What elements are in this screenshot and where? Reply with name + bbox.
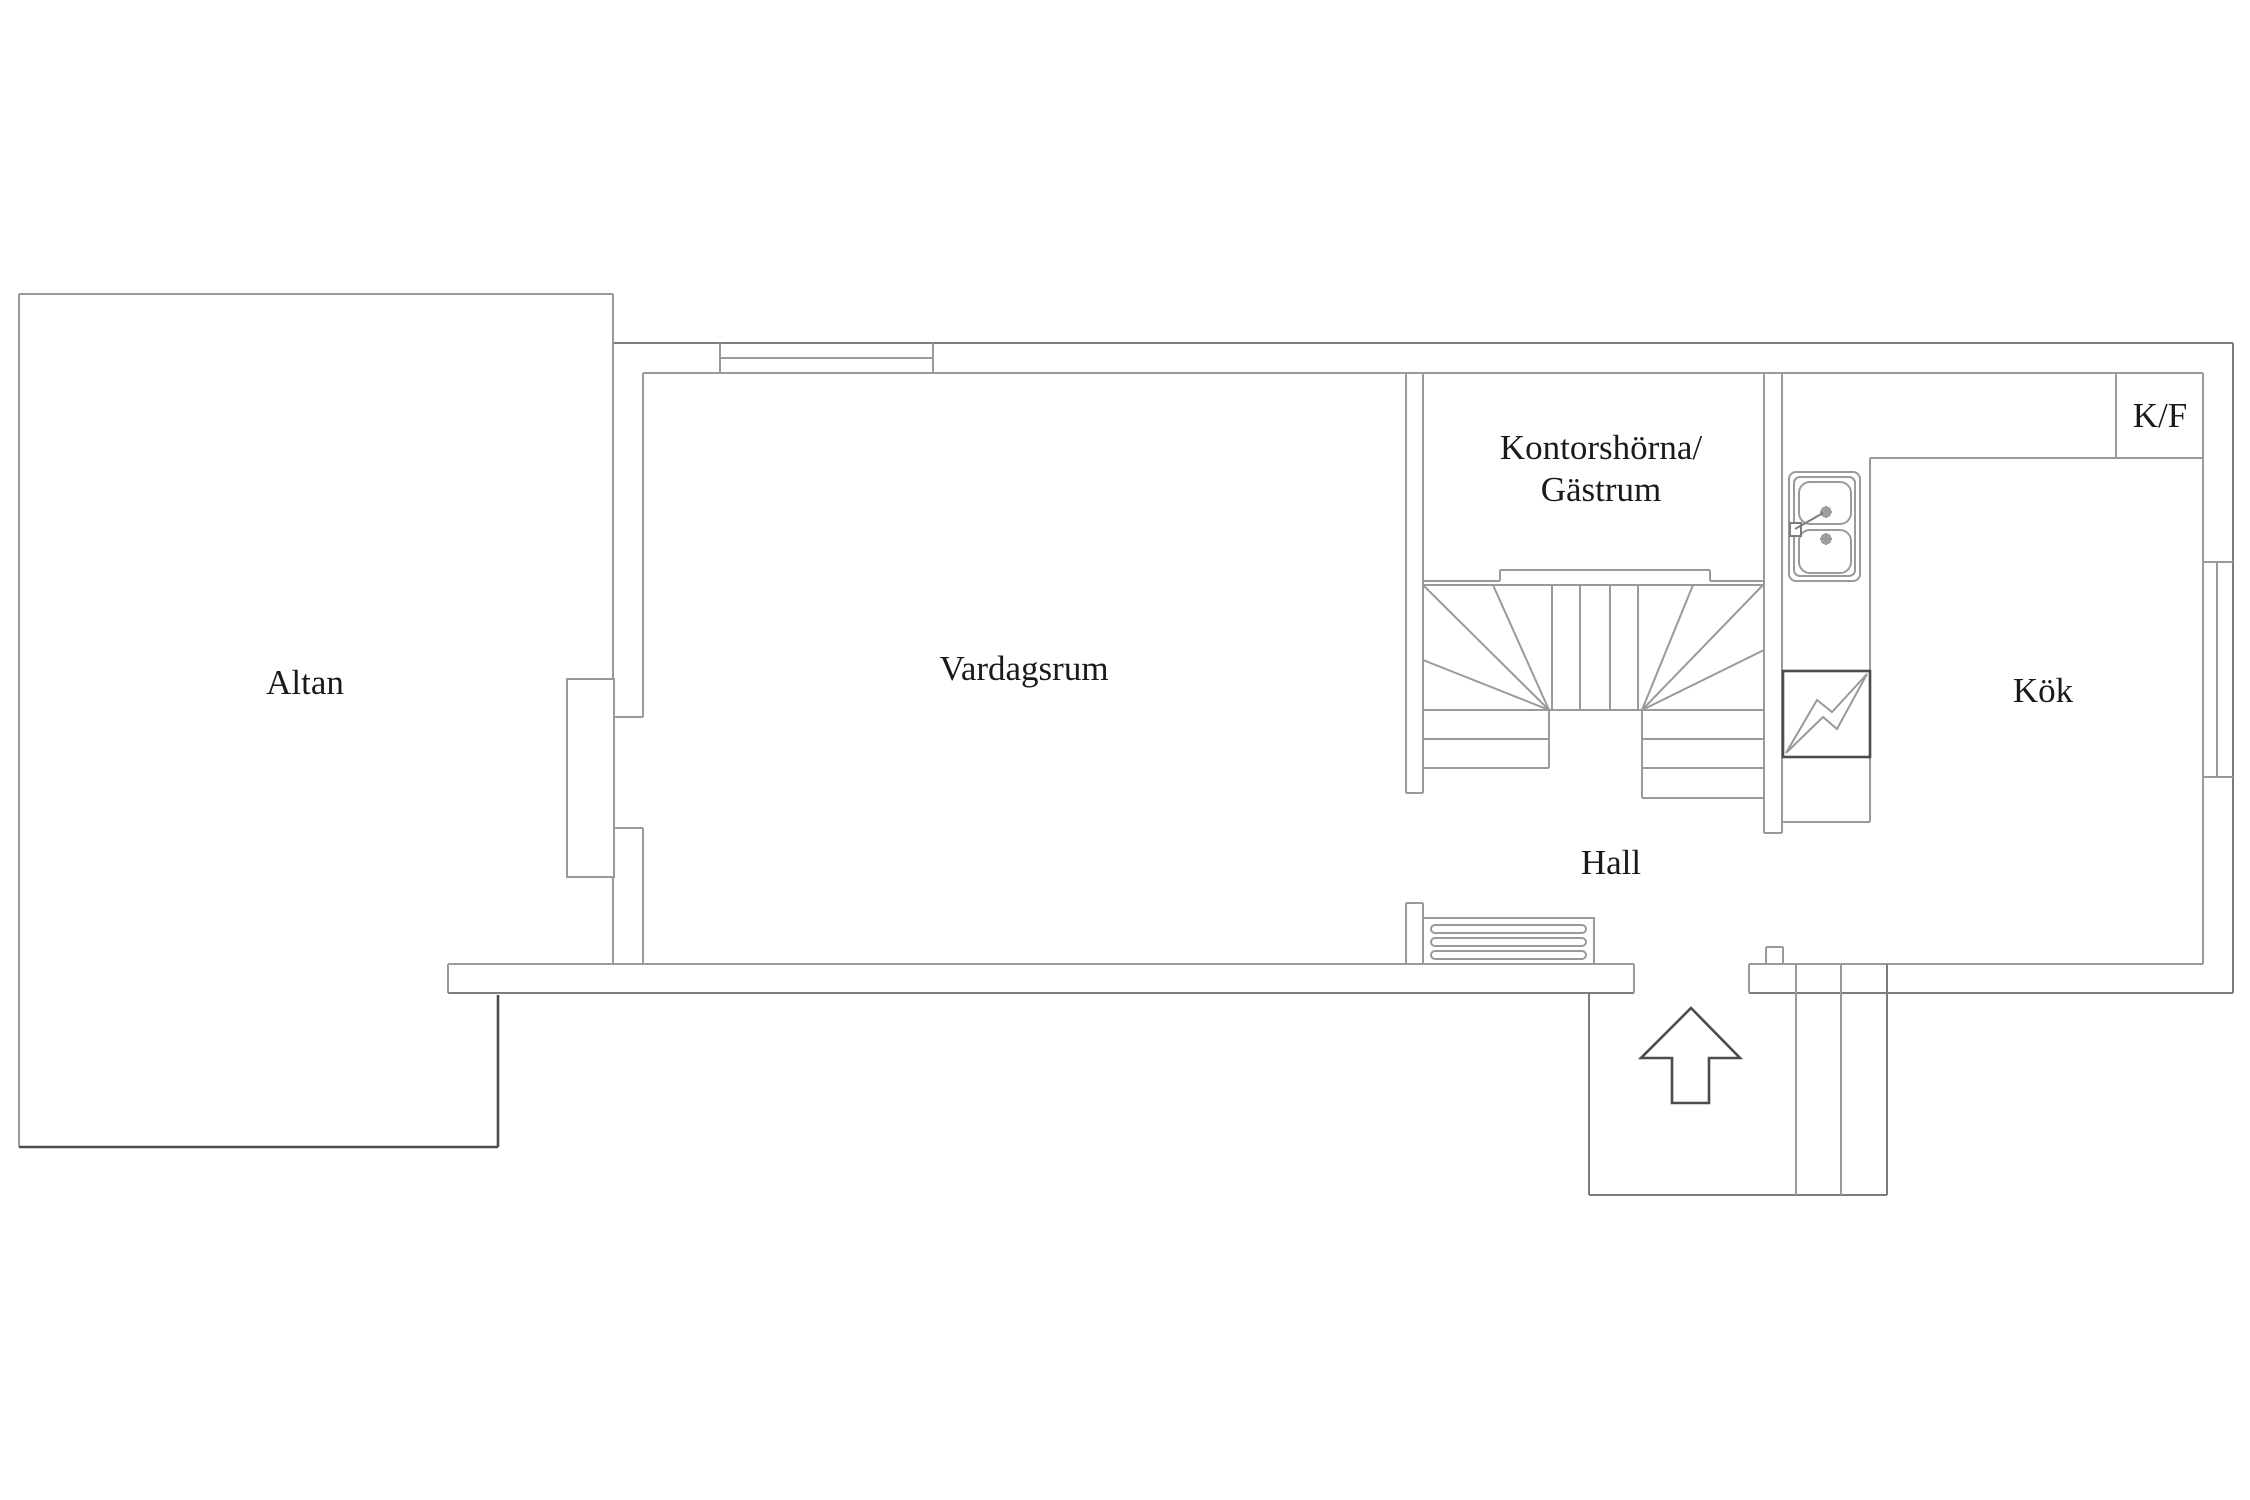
label-altan: Altan (266, 663, 344, 702)
label-kok: Kök (2013, 671, 2074, 710)
floor-plan: Altan Vardagsrum Kontorshörna/ Gästrum H… (0, 0, 2250, 1500)
altan-deck-outline (19, 294, 613, 1147)
label-kontorshorna-line2: Gästrum (1541, 470, 1662, 509)
label-hall: Hall (1581, 843, 1642, 882)
building-walls (448, 294, 2233, 993)
top-window-icon (720, 343, 933, 373)
label-kf: K/F (2133, 396, 2187, 435)
label-kontorshorna-line1: Kontorshörna/ (1500, 428, 1702, 467)
dishwasher-icon (1783, 671, 1870, 757)
label-vardagsrum: Vardagsrum (939, 649, 1108, 688)
entrance-arrow-icon (1641, 1008, 1740, 1103)
sink-icon (1789, 472, 1860, 581)
radiator-grille-icon (1423, 918, 1594, 964)
staircase-icon (1423, 585, 1764, 798)
room-labels: Altan Vardagsrum Kontorshörna/ Gästrum H… (266, 396, 2187, 882)
terrace-door-leaf (567, 679, 614, 877)
right-window-icon (2203, 562, 2233, 777)
entry-porch (1589, 964, 1887, 1195)
